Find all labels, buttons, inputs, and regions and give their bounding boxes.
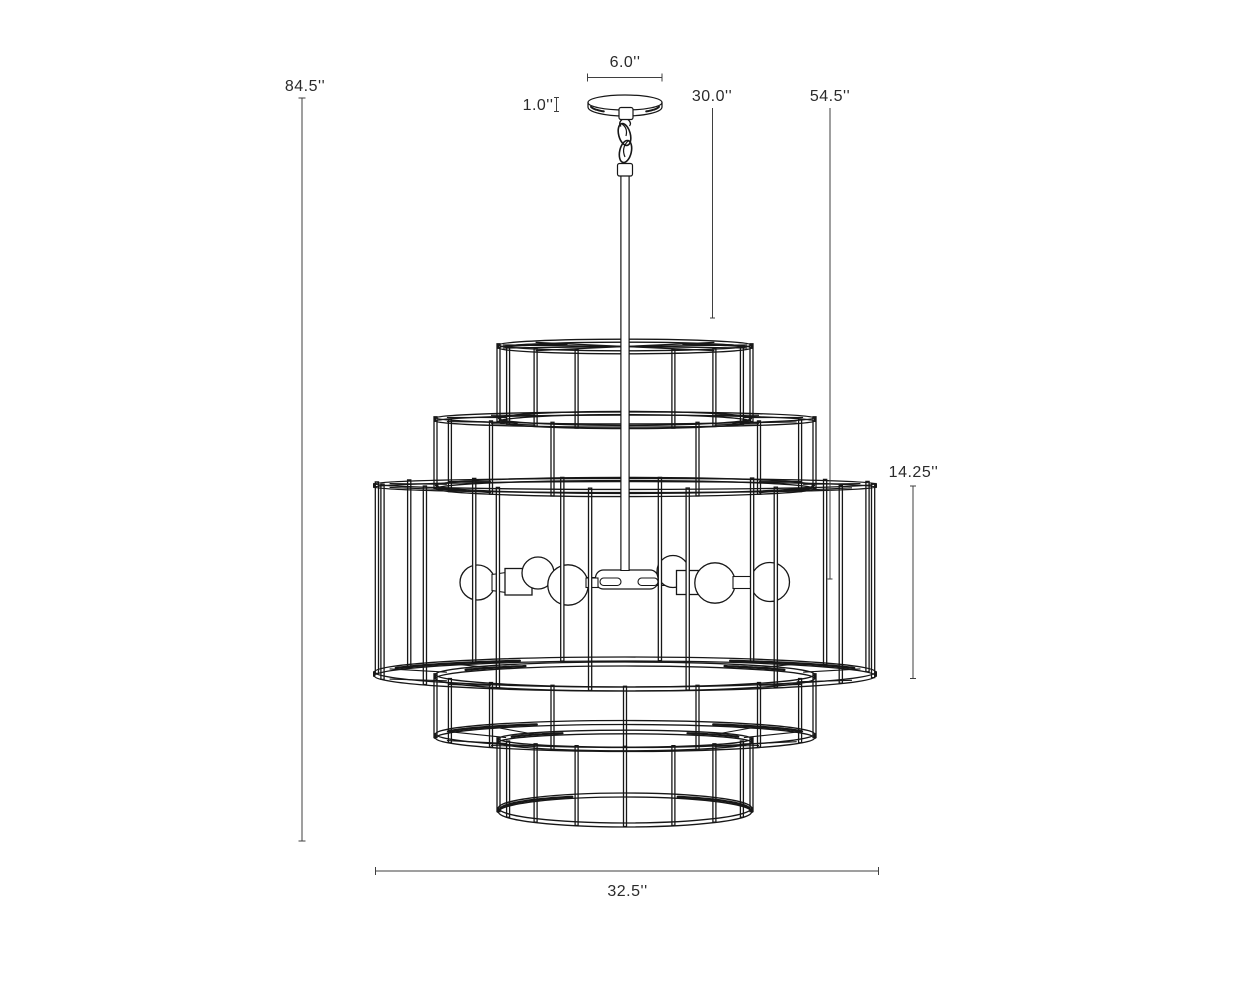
- svg-text:30.0'': 30.0'': [692, 88, 732, 105]
- svg-text:84.5'': 84.5'': [285, 78, 325, 95]
- svg-text:1.0'': 1.0'': [523, 97, 554, 114]
- svg-text:14.25'': 14.25'': [889, 464, 939, 481]
- svg-text:6.0'': 6.0'': [610, 54, 641, 71]
- svg-text:32.5'': 32.5'': [607, 883, 647, 900]
- svg-text:54.5'': 54.5'': [810, 88, 850, 105]
